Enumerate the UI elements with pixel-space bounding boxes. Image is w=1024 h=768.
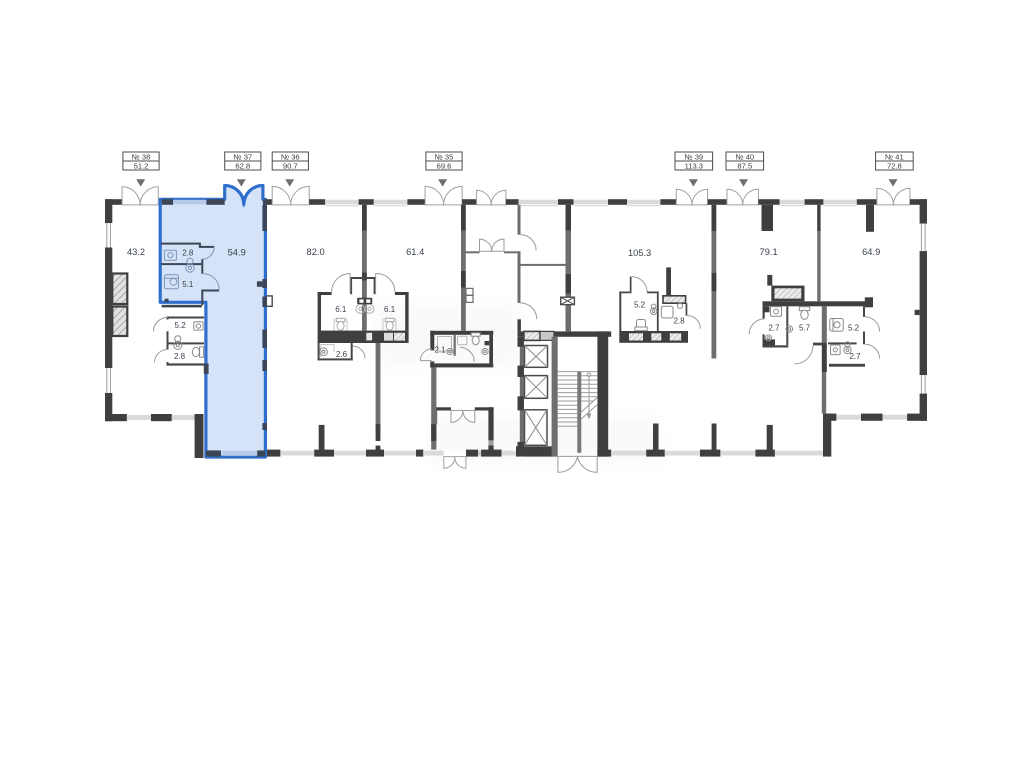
svg-text:5.1: 5.1 <box>182 280 194 289</box>
svg-text:2.8: 2.8 <box>182 249 194 258</box>
svg-text:51.2: 51.2 <box>134 161 149 170</box>
svg-text:5.2: 5.2 <box>634 301 646 310</box>
svg-text:№ 37: № 37 <box>233 152 252 161</box>
svg-text:105.3: 105.3 <box>628 248 651 258</box>
svg-text:6.1: 6.1 <box>335 305 347 314</box>
svg-text:2.6: 2.6 <box>336 350 348 359</box>
svg-text:2.7: 2.7 <box>849 352 861 361</box>
svg-text:5.7: 5.7 <box>799 324 811 333</box>
svg-text:5.2: 5.2 <box>175 321 187 330</box>
svg-text:69.6: 69.6 <box>437 161 452 170</box>
svg-text:2.8: 2.8 <box>673 316 685 325</box>
svg-text:64.9: 64.9 <box>862 247 880 257</box>
svg-text:№ 36: № 36 <box>281 152 300 161</box>
svg-text:№ 39: № 39 <box>684 152 703 161</box>
svg-text:62.8: 62.8 <box>235 161 250 170</box>
svg-text:№ 35: № 35 <box>435 152 454 161</box>
svg-text:82.0: 82.0 <box>307 247 325 257</box>
svg-text:6.1: 6.1 <box>384 305 396 314</box>
svg-text:43.2: 43.2 <box>127 247 145 257</box>
svg-text:90.7: 90.7 <box>283 161 298 170</box>
svg-text:2.1: 2.1 <box>434 346 446 355</box>
svg-text:2.7: 2.7 <box>768 324 780 333</box>
svg-text:2.8: 2.8 <box>174 352 186 361</box>
svg-text:54.9: 54.9 <box>228 248 246 258</box>
svg-text:№ 41: № 41 <box>885 152 904 161</box>
svg-text:61.4: 61.4 <box>406 247 424 257</box>
svg-text:№ 38: № 38 <box>132 152 151 161</box>
svg-text:113.3: 113.3 <box>685 161 703 170</box>
svg-text:72.8: 72.8 <box>887 161 902 170</box>
svg-text:№ 40: № 40 <box>735 152 754 161</box>
svg-text:5.2: 5.2 <box>848 324 860 333</box>
svg-text:79.1: 79.1 <box>760 247 778 257</box>
svg-text:87.5: 87.5 <box>737 161 752 170</box>
